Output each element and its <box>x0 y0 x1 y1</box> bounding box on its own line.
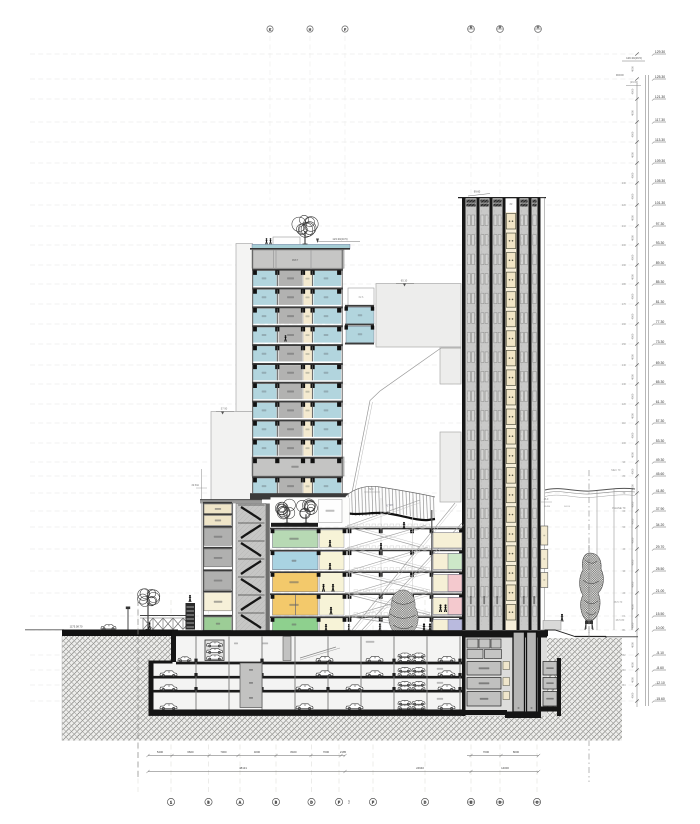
svg-text:4000: 4000 <box>631 110 635 116</box>
svg-text:16F: 16F <box>622 322 627 326</box>
svg-text:109.30: 109.30 <box>655 159 665 163</box>
svg-text:ROOF: ROOF <box>616 73 624 77</box>
svg-text:4000: 4000 <box>631 642 635 648</box>
svg-text:85.30: 85.30 <box>656 280 665 284</box>
svg-text:20F: 20F <box>622 243 627 247</box>
svg-text:129.30: 129.30 <box>655 50 665 54</box>
svg-text:ETFE: ETFE <box>386 503 393 507</box>
svg-text:99.60: 99.60 <box>474 190 481 194</box>
svg-text:62.6: 62.6 <box>359 296 364 299</box>
svg-text:4000: 4000 <box>631 172 635 178</box>
svg-text:4000: 4000 <box>631 152 635 158</box>
svg-text:B: B <box>207 800 209 804</box>
svg-text:4000: 4000 <box>631 452 635 458</box>
svg-text:4000: 4000 <box>631 662 635 668</box>
svg-text:46.0: 46.0 <box>544 499 549 501</box>
svg-text:89.30: 89.30 <box>656 261 665 265</box>
svg-text:(29.60): (29.60) <box>630 80 638 84</box>
svg-text:4000: 4000 <box>631 537 635 543</box>
svg-text:2F: 2F <box>622 591 625 595</box>
svg-text:21.00: 21.00 <box>656 589 665 593</box>
svg-text:93.30: 93.30 <box>656 241 665 245</box>
svg-text:4000: 4000 <box>631 254 635 260</box>
svg-text:105.30: 105.30 <box>655 179 665 183</box>
svg-text:10.00: 10.00 <box>656 626 665 630</box>
svg-text:B1: B1 <box>622 628 626 632</box>
svg-text:8400: 8400 <box>290 750 297 754</box>
svg-text:4000: 4000 <box>631 293 635 299</box>
svg-text:4F: 4F <box>622 547 625 551</box>
svg-text:4000: 4000 <box>631 274 635 280</box>
svg-text:54810: 54810 <box>564 506 571 508</box>
svg-text:4000: 4000 <box>631 518 635 524</box>
svg-text:73.30: 73.30 <box>656 340 665 344</box>
svg-text:65.30: 65.30 <box>656 380 665 384</box>
svg-text:4000: 4000 <box>631 413 635 419</box>
svg-text:7000: 7000 <box>483 750 490 754</box>
svg-text:996T: 996T <box>292 258 299 262</box>
svg-text:23F: 23F <box>622 181 627 185</box>
svg-text:4000: 4000 <box>631 66 635 72</box>
svg-text:15F: 15F <box>622 342 627 346</box>
svg-text:25.50: 25.50 <box>656 567 665 571</box>
svg-text:9F: 9F <box>622 460 625 464</box>
svg-text:4000: 4000 <box>631 622 635 628</box>
svg-text:57.30: 57.30 <box>656 419 665 423</box>
svg-text:11F: 11F <box>622 421 627 425</box>
svg-text:48131: 48131 <box>239 766 247 770</box>
svg-text:4000: 4000 <box>631 604 635 610</box>
svg-text:4000: 4000 <box>631 581 635 587</box>
svg-text:1175.08.70: 1175.08.70 <box>70 625 83 629</box>
svg-text:4000: 4000 <box>631 215 635 221</box>
svg-text:4000: 4000 <box>254 750 261 754</box>
svg-text:57.90: 57.90 <box>221 407 228 411</box>
svg-text:15.50: 15.50 <box>656 612 665 616</box>
svg-text:4000: 4000 <box>631 88 635 94</box>
svg-text:-12.10: -12.10 <box>655 681 665 685</box>
svg-text:41.80: 41.80 <box>656 489 665 493</box>
svg-text:24640: 24640 <box>416 766 424 770</box>
svg-text:14000: 14000 <box>501 766 509 770</box>
svg-text:12F: 12F <box>622 402 627 406</box>
svg-text:F: F <box>338 800 340 804</box>
svg-text:4000: 4000 <box>631 374 635 380</box>
svg-text:4000: 4000 <box>631 501 635 507</box>
svg-text:4000: 4000 <box>631 333 635 339</box>
svg-text:19F: 19F <box>622 263 627 267</box>
svg-text:45.60: 45.60 <box>656 472 665 476</box>
svg-text:4000: 4000 <box>631 432 635 438</box>
svg-text:18F: 18F <box>622 282 627 286</box>
svg-text:34.20: 34.20 <box>656 523 665 527</box>
svg-text:5F: 5F <box>622 525 625 529</box>
svg-text:PHASE 7F: PHASE 7F <box>612 506 626 510</box>
svg-text:65.10: 65.10 <box>401 279 408 283</box>
svg-text:14F: 14F <box>622 363 627 367</box>
svg-text:-15.60: -15.60 <box>655 697 665 701</box>
svg-text:4000: 4000 <box>631 468 635 474</box>
svg-text:4000: 4000 <box>631 354 635 360</box>
svg-text:3F: 3F <box>622 569 625 573</box>
svg-text:4000: 4000 <box>631 559 635 565</box>
svg-text:69.30: 69.30 <box>656 361 665 365</box>
svg-text:21F: 21F <box>622 224 627 228</box>
svg-text:4000: 4000 <box>631 313 635 319</box>
svg-text:B3: B3 <box>622 668 626 672</box>
svg-text:29.70: 29.70 <box>656 545 665 549</box>
svg-text:61.30: 61.30 <box>656 400 665 404</box>
svg-text:129.30(49.5): 129.30(49.5) <box>626 56 642 60</box>
svg-text:5400: 5400 <box>157 750 164 754</box>
svg-text:8F: 8F <box>622 474 625 478</box>
svg-text:113.30: 113.30 <box>655 138 665 142</box>
svg-text:101.30: 101.30 <box>655 201 665 205</box>
svg-text:28.5 7F: 28.5 7F <box>614 600 623 604</box>
svg-text:K: K <box>269 27 271 31</box>
svg-text:17F: 17F <box>622 302 627 306</box>
svg-text:4000: 4000 <box>631 677 635 683</box>
svg-text:8000: 8000 <box>513 750 520 754</box>
svg-text:7000: 7000 <box>220 750 227 754</box>
svg-text:10F: 10F <box>622 441 627 445</box>
svg-text:37.90: 37.90 <box>656 507 665 511</box>
svg-text:125.30: 125.30 <box>655 75 665 79</box>
svg-text:77.30: 77.30 <box>656 320 665 324</box>
svg-text:1: 1 <box>170 800 172 804</box>
svg-text:5-8: 5-8 <box>347 800 351 804</box>
svg-text:49.30: 49.30 <box>656 458 665 462</box>
svg-text:8F490: 8F490 <box>544 506 551 508</box>
svg-text:B: B <box>275 800 277 804</box>
svg-text:13F: 13F <box>622 382 627 386</box>
svg-text:-5.10: -5.10 <box>656 651 664 655</box>
svg-text:B2: B2 <box>622 653 626 657</box>
svg-text:F: F <box>344 27 346 31</box>
svg-text:123.30(43.5): 123.30(43.5) <box>332 237 347 241</box>
svg-text:53.30: 53.30 <box>656 439 665 443</box>
svg-text:2185: 2185 <box>340 750 347 754</box>
svg-text:4000: 4000 <box>631 131 635 137</box>
svg-text:22F: 22F <box>622 203 627 207</box>
svg-text:81.30: 81.30 <box>656 300 665 304</box>
svg-text:F: F <box>372 800 374 804</box>
svg-text:E: E <box>470 25 472 29</box>
svg-text:121.30: 121.30 <box>655 95 665 99</box>
svg-text:117.30: 117.30 <box>655 118 665 122</box>
svg-text:49.50A: 49.50A <box>191 484 199 487</box>
svg-text:7000: 7000 <box>323 750 330 754</box>
svg-text:-8.60: -8.60 <box>656 666 664 670</box>
svg-text:MEC 7F: MEC 7F <box>611 468 621 472</box>
svg-text:6600: 6600 <box>187 750 194 754</box>
svg-text:4000: 4000 <box>631 393 635 399</box>
svg-text:72.0: 72.0 <box>369 488 374 491</box>
svg-text:28.5 8F: 28.5 8F <box>616 618 625 622</box>
svg-text:B4: B4 <box>622 683 626 687</box>
svg-text:4000: 4000 <box>631 692 635 698</box>
svg-text:97.30: 97.30 <box>656 222 665 226</box>
svg-text:4000: 4000 <box>631 235 635 241</box>
svg-text:H: H <box>309 27 311 31</box>
svg-text:4000: 4000 <box>631 193 635 199</box>
